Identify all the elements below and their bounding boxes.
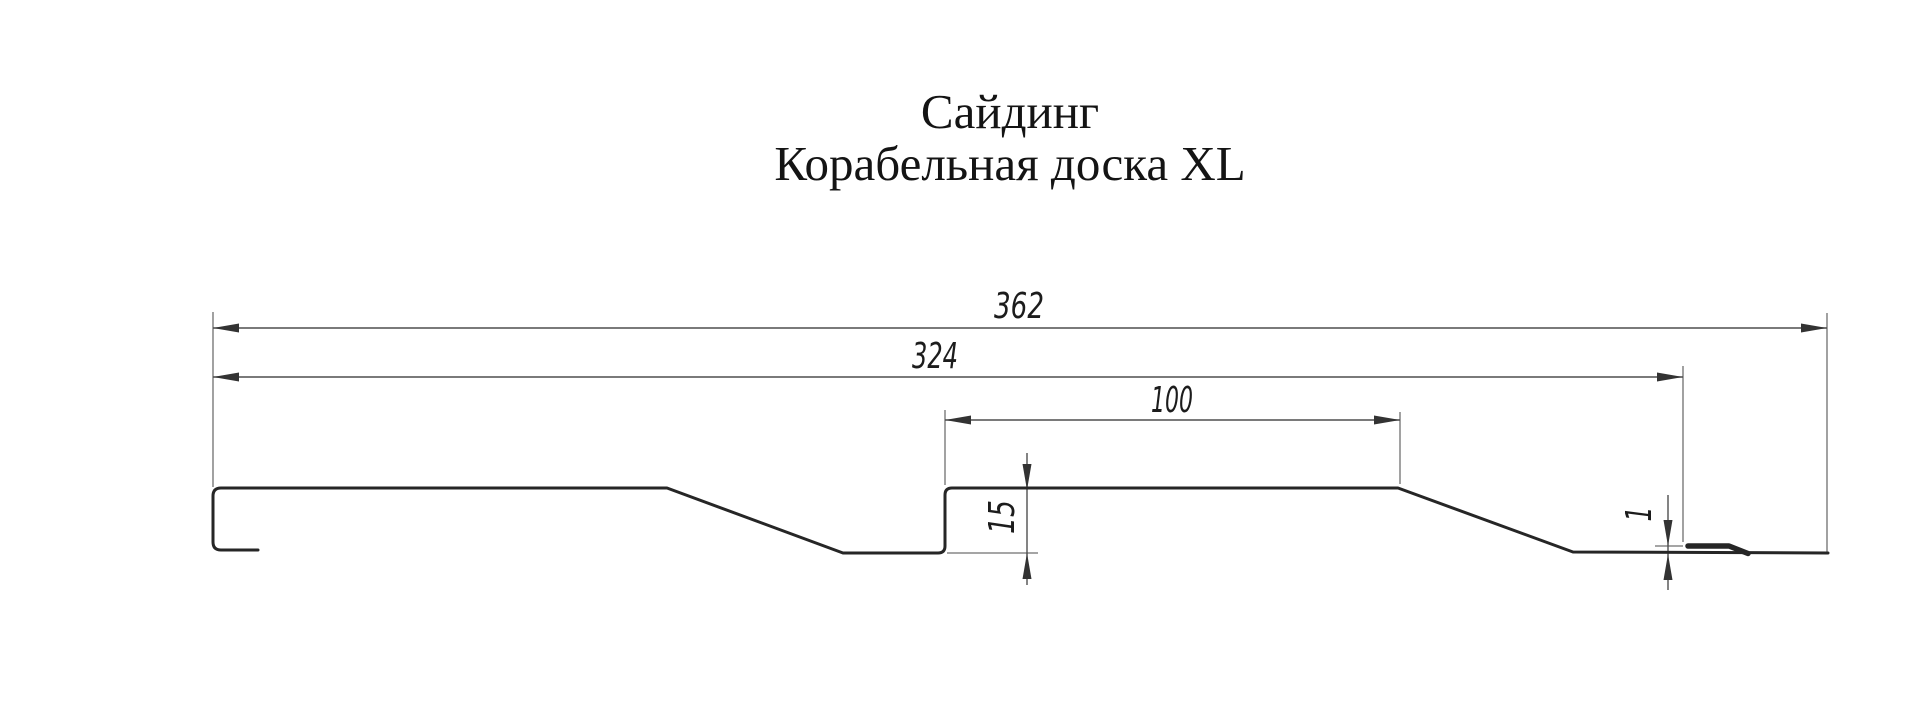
profile-technical-drawing: 362 324 100 15 1: [0, 0, 1920, 723]
arrow-324-left-icon: [213, 373, 239, 382]
arrow-1-top-icon: [1664, 520, 1673, 546]
arrow-15-top-icon: [1023, 464, 1032, 490]
arrow-324-right-icon: [1657, 373, 1683, 382]
drawing-canvas: Сайдинг Корабельная доска XL 362 324: [0, 0, 1920, 723]
dimension-profile-depth: 15: [982, 453, 1032, 585]
dim-label-324: 324: [912, 336, 958, 377]
arrow-100-right-icon: [1374, 416, 1400, 425]
dimension-hem-offset: 1: [1619, 495, 1673, 590]
arrow-100-left-icon: [945, 416, 971, 425]
dim-label-15: 15: [982, 500, 1023, 534]
arrow-362-right-icon: [1801, 324, 1827, 333]
dim-label-1: 1: [1619, 507, 1660, 522]
arrow-15-bottom-icon: [1023, 553, 1032, 579]
dim-label-362: 362: [994, 286, 1044, 327]
dimension-plank-width: 100: [945, 380, 1400, 425]
dimension-overall-width: 362: [213, 286, 1827, 333]
dim-label-100: 100: [1151, 380, 1193, 421]
dimension-cover-width: 324: [213, 336, 1683, 382]
arrow-362-left-icon: [213, 324, 239, 333]
arrow-1-bottom-icon: [1664, 554, 1673, 580]
